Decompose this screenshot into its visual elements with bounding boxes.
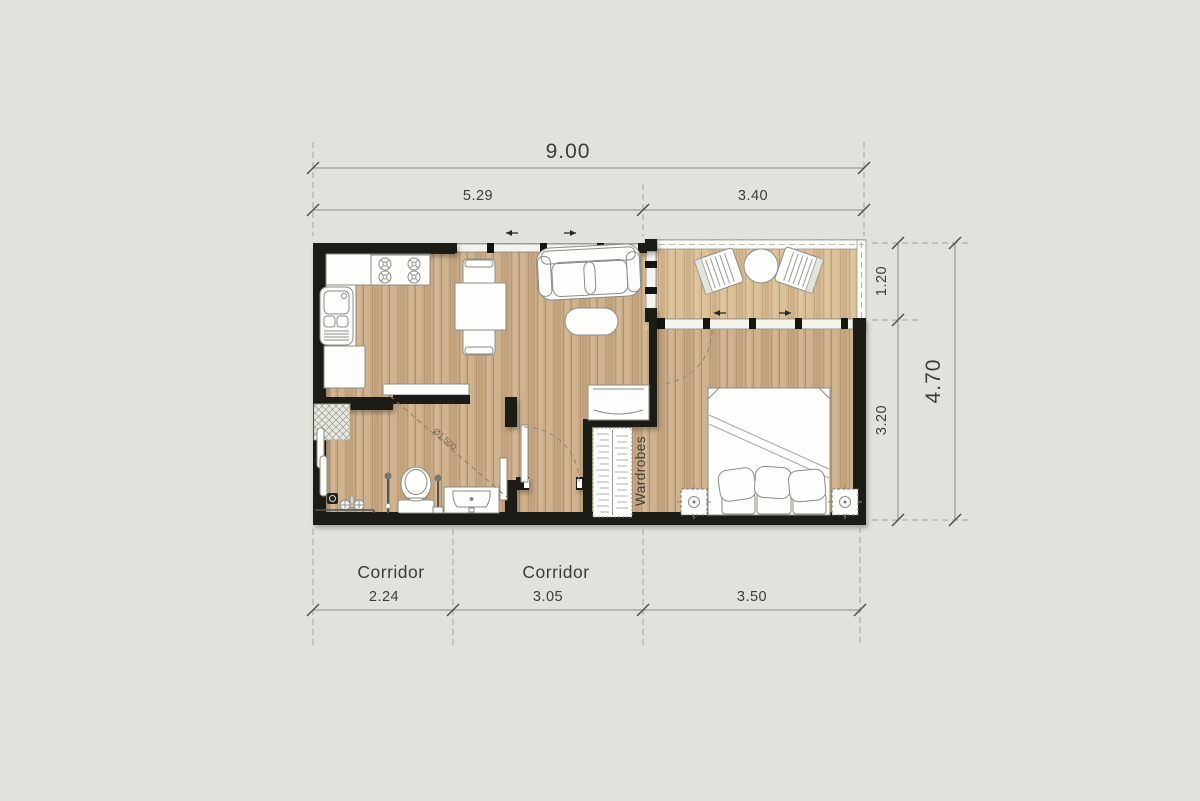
dim-bottom-a: 2.24 — [369, 589, 399, 605]
dim-width-total: 9.00 — [546, 140, 591, 163]
sliding-door-bathroom — [383, 384, 470, 404]
window-balcony-bedroom — [657, 318, 853, 329]
coffee-table — [565, 308, 618, 335]
pillow — [717, 467, 757, 503]
wall-bath-right-upper — [505, 397, 517, 427]
dining-chair-top — [463, 259, 495, 286]
wall-balcony-post-left — [645, 239, 657, 251]
dimensions-top: 9.00 5.29 3.40 — [307, 140, 870, 236]
nightstand-left — [677, 485, 711, 519]
room-label-corridor-right: Corridor — [522, 562, 589, 582]
wardrobe — [593, 428, 632, 517]
wall-wardrobe-left — [583, 419, 592, 525]
wardrobes-label: Wardrobes — [633, 436, 648, 506]
wall-window-cap-left — [449, 243, 457, 253]
dim-bottom-b: 3.05 — [533, 589, 563, 605]
kitchen-sink — [320, 287, 353, 345]
sofa — [536, 243, 643, 300]
bedroom — [588, 385, 862, 519]
kitchen-cabinet — [324, 346, 365, 388]
dimensions-bottom: Corridor Corridor 2.24 3.05 3.50 — [307, 527, 866, 645]
dim-height-total: 4.70 — [922, 359, 945, 404]
pillow — [788, 468, 827, 502]
dining-chair-bottom — [463, 327, 495, 355]
wall-top — [313, 243, 455, 254]
stove — [371, 255, 430, 285]
bed — [708, 388, 830, 515]
floor-plan: Ø1.500 Wardrobes 9.00 5.29 3.40 1.20 3.2… — [0, 0, 1200, 801]
dim-width-a: 5.29 — [463, 188, 493, 204]
dimensions-right: 1.20 3.20 4.70 — [872, 237, 972, 526]
shower-drain — [327, 493, 338, 504]
dim-bottom-c: 3.50 — [737, 589, 767, 605]
pillow — [754, 466, 792, 499]
window-living-balcony — [645, 251, 657, 315]
door-leaf-corridor — [521, 425, 528, 482]
door-leaf-bathroom — [500, 458, 507, 500]
wall-balcony-post-right — [853, 318, 866, 330]
dining-table — [455, 283, 506, 330]
dim-right-b: 3.20 — [874, 405, 890, 435]
wall-window-cap-bottom — [645, 308, 657, 322]
balcony-table — [744, 249, 778, 283]
vanity — [588, 385, 649, 420]
nightstand-right — [828, 485, 862, 519]
dim-right-a: 1.20 — [874, 266, 890, 296]
towel-bar — [320, 456, 327, 496]
bathroom-sink — [444, 487, 499, 513]
wall-hall-bedroom — [649, 322, 657, 421]
toilet — [398, 467, 434, 513]
dim-width-b: 3.40 — [738, 188, 768, 204]
floor-plan-canvas: Ø1.500 Wardrobes 9.00 5.29 3.40 1.20 3.2… — [0, 0, 1200, 801]
room-label-corridor-left: Corridor — [357, 562, 424, 582]
